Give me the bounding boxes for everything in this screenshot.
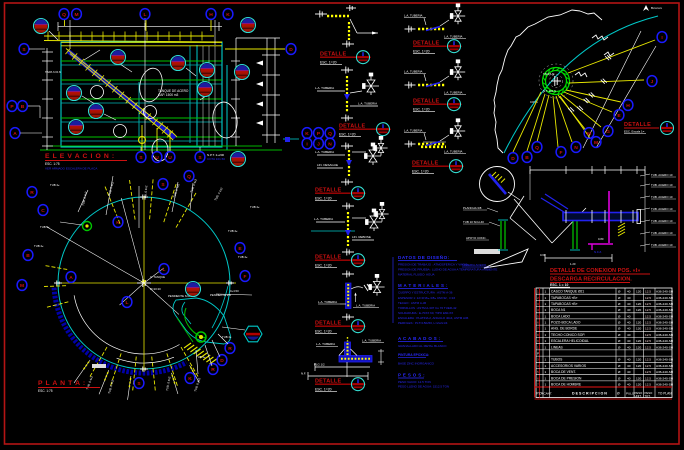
svg-text:BASE ZINC INORGANICO: BASE ZINC INORGANICO [398,362,435,366]
svg-text:TUB 4«: TUB 4« [250,205,260,209]
svg-text:M: M [594,140,598,146]
svg-text:DETALLE: DETALLE [624,122,651,128]
svg-text:A36-240-SH: A36-240-SH [656,296,673,300]
svg-text:Q: Q [328,131,332,137]
svg-text:L: L [163,267,166,273]
svg-text:120: 120 [636,364,641,368]
svg-text:M: M [20,283,24,289]
svg-text:PRESION DE PRUEBA : LLENO DE A: PRESION DE PRUEBA : LLENO DE AGUA A TEMP… [398,268,497,272]
svg-text:K: K [226,12,230,18]
svg-text:ESCALERA : PLATINA 2, ANGULO 4: ESCALERA : PLATINA 2, ANGULO 40x4, ASTM … [398,316,469,320]
svg-text:F: F [244,274,247,280]
svg-text:40: 40 [627,345,631,349]
svg-text:1: 1 [545,345,547,349]
svg-text:TANQUE: TANQUE [543,72,555,76]
svg-text:A36-240-SH: A36-240-SH [656,358,673,362]
svg-text:40: 40 [627,358,631,362]
svg-text:Q: Q [535,145,539,151]
svg-text:TUB. ACERO 10: TUB. ACERO 10 [651,195,673,199]
svg-text:TOT.: TOT. [645,394,651,398]
svg-text:40: 40 [627,314,631,318]
svg-text:F: F [560,150,563,156]
svg-text:L.A. TUBERIA: L.A. TUBERIA [404,14,422,18]
svg-text:ESC. 1=20: ESC. 1=20 [315,330,332,334]
svg-text:4: 4 [537,308,539,312]
svg-text:TUBERIA ACERO: TUBERIA ACERO [462,263,487,267]
svg-text:N.F.Z.: N.F.Z. [594,250,602,254]
svg-text:12.5: 12.5 [645,382,651,386]
svg-text:PESO LLENO DE AGUA: 1512.5 TON: PESO LLENO DE AGUA: 1512.5 TON [398,385,449,389]
svg-text:4: 4 [537,364,539,368]
svg-text:12.5: 12.5 [645,314,651,318]
svg-text:DETALLE: DETALLE [412,161,438,167]
svg-text:TAPABOCAS «B»: TAPABOCAS «B» [551,296,578,300]
svg-text:12.5: 12.5 [645,358,651,362]
svg-text:LIN. REBOSE: LIN. REBOSE [352,235,371,239]
svg-text:A36-240-SH: A36-240-SH [656,382,673,386]
svg-text:L.A. TUBERIA: L.A. TUBERIA [444,35,462,39]
svg-text:TUB 4«: TUB 4« [40,225,50,229]
svg-text:PLG 1/2: PLG 1/2 [314,363,325,367]
svg-text:CUERPO Y ESTRUCTURA : ASTM A-3: CUERPO Y ESTRUCTURA : ASTM A-36 [398,291,453,295]
svg-text:L.A. TUBERIA: L.A. TUBERIA [316,342,335,346]
svg-text:COTA 101.50: COTA 101.50 [207,157,225,161]
svg-text:LIN. DESAGUE: LIN. DESAGUE [317,163,338,167]
svg-text:7: 7 [537,327,539,331]
svg-text:CAP. 1500 m3: CAP. 1500 m3 [158,93,179,97]
svg-text:ESC. 1:75: ESC. 1:75 [38,389,53,393]
svg-text:DETALLE: DETALLE [315,321,341,327]
svg-text:40: 40 [627,364,631,368]
svg-text:TUB. ACERO 10: TUB. ACERO 10 [651,183,673,187]
svg-text:POZO-BOCA LADO: POZO-BOCA LADO [551,321,581,325]
svg-text:40: 40 [627,327,631,331]
svg-text:120: 120 [636,376,641,380]
svg-text:ESC. 1=20: ESC. 1=20 [413,50,430,54]
svg-text:7: 7 [537,382,539,386]
svg-text:BOCA DE HOMBRE: BOCA DE HOMBRE [551,382,582,386]
svg-text:ESC. 1=20: ESC. 1=20 [412,170,429,174]
svg-text:12.5: 12.5 [645,321,651,325]
svg-text:C. TANQUE: C. TANQUE [150,275,165,279]
svg-text:TUB 4«: TUB 4« [238,255,248,259]
svg-text:TUB. ACERO 10: TUB. ACERO 10 [651,219,673,223]
svg-text:1: 1 [545,382,547,386]
svg-text:DATOS DE DISEÑO:: DATOS DE DISEÑO: [398,254,450,260]
svg-text:A36-240-SH: A36-240-SH [656,376,673,380]
svg-text:TUB 4«: TUB 4« [196,355,206,359]
svg-text:120: 120 [636,290,641,294]
svg-text:TUB 4«: TUB 4« [50,183,60,187]
svg-text:6: 6 [537,376,539,380]
svg-text:APOYO CONC.: APOYO CONC. [466,236,487,240]
svg-text:C: C [41,208,45,214]
svg-text:1: 1 [545,314,547,318]
svg-text:9: 9 [537,339,539,343]
svg-text:ACCESORIOS VARIOS: ACCESORIOS VARIOS [551,364,587,368]
svg-text:PULG: PULG [626,392,635,396]
svg-text:PESO VACIO: 12.5 TON: PESO VACIO: 12.5 TON [398,380,431,384]
svg-text:GRANALLADO AL METAL BLANCO: GRANALLADO AL METAL BLANCO [398,344,447,348]
svg-text:MATERIAL FLUIDO: AGUA: MATERIAL FLUIDO: AGUA [398,273,435,277]
svg-text:A36-240-SH: A36-240-SH [656,364,673,368]
svg-text:TUB 4«: TUB 4« [222,335,232,339]
svg-text:ESC. 1=20: ESC. 1=20 [320,61,337,65]
svg-text:A36-240-SH: A36-240-SH [656,370,673,374]
svg-text:40: 40 [627,308,631,312]
svg-text:1: 1 [545,370,547,374]
svg-text:120: 120 [636,302,641,306]
svg-text:N.F.: N.F. [301,372,306,376]
svg-text:DETALLE: DETALLE [315,379,341,385]
svg-text:120: 120 [636,358,641,362]
svg-text:TUB. ACERO 10: TUB. ACERO 10 [651,231,673,235]
svg-text:1: 1 [545,333,547,337]
svg-text:VER ARMADO ESCALERA DE PLACA: VER ARMADO ESCALERA DE PLACA [45,167,97,171]
svg-text:2: 2 [537,296,539,300]
svg-text:5: 5 [537,314,539,318]
svg-text:L.A. TUBERIA: L.A. TUBERIA [358,102,377,106]
svg-text:U: U [168,155,172,161]
svg-text:E L E V A C I O N :: E L E V A C I O N : [45,153,115,160]
svg-text:L.A. TUBERIA: L.A. TUBERIA [314,217,333,221]
svg-text:12.5: 12.5 [645,302,651,306]
svg-text:N.T. 101.5: N.T. 101.5 [543,89,556,93]
svg-text:Q: Q [62,12,66,18]
svg-text:1: 1 [545,308,547,312]
svg-text:120: 120 [636,382,641,386]
svg-text:1: 1 [545,358,547,362]
svg-text:TUB. ACERO 10: TUB. ACERO 10 [651,243,673,247]
svg-text:R=10.30: R=10.30 [150,287,161,291]
svg-text:A36-240-SH: A36-240-SH [656,290,673,294]
svg-text:0.80: 0.80 [598,237,604,241]
svg-text:DETALLE: DETALLE [320,52,346,58]
svg-text:TUB 4«: TUB 4« [228,229,238,233]
svg-text:N: N [574,145,578,151]
svg-text:8: 8 [537,333,539,337]
svg-text:12.5: 12.5 [645,290,651,294]
svg-text:ESPESOR 1: 12=3/16»-3/8» CM=: ESPESOR 1: 12=3/16»-3/8» CM=32 , t=16 [398,296,455,300]
svg-text:12.5: 12.5 [645,364,651,368]
svg-text:0+4.50: 0+4.50 [230,289,239,293]
svg-text:120: 120 [636,339,641,343]
svg-text:ANG. DE BORDE: ANG. DE BORDE [551,327,578,331]
svg-text:P L A N T A :: P L A N T A : [38,380,86,387]
svg-text:TUBOS: TUBOS [551,358,563,362]
svg-text:A36-240-SH: A36-240-SH [656,345,673,349]
svg-text:L: L [144,12,147,18]
svg-text:L.A. TUBERIA: L.A. TUBERIA [404,70,422,74]
svg-text:120: 120 [636,327,641,331]
svg-text:P E S O S :: P E S O S : [398,373,425,378]
svg-text:M: M [587,131,591,137]
svg-text:P: P [537,352,539,356]
svg-text:G: G [606,129,610,135]
svg-text:A36-240-SH: A36-240-SH [656,308,673,312]
svg-text:L.A. TUBERIA: L.A. TUBERIA [315,150,334,154]
svg-text:PENDIENTE 2%: PENDIENTE 2% [210,293,231,297]
svg-text:1: 1 [545,327,547,331]
svg-text:L.A. TUBERIA: L.A. TUBERIA [318,300,337,304]
svg-text:40: 40 [627,296,631,300]
svg-text:12.5: 12.5 [645,339,651,343]
svg-text:40: 40 [627,333,631,337]
svg-text:BOCA LADO: BOCA LADO [551,314,570,318]
svg-text:12.5: 12.5 [645,308,651,312]
svg-text:1: 1 [545,376,547,380]
svg-text:J: J [317,141,320,147]
svg-text:TUB. ACERO 10: TUB. ACERO 10 [651,207,673,211]
svg-text:ESC. Escala 1=: ESC. Escala 1= [624,130,645,134]
svg-text:40: 40 [627,339,631,343]
svg-text:LINEAS: LINEAS [551,345,564,349]
svg-text:R: R [30,190,34,196]
svg-text:TAPA h=0.6: TAPA h=0.6 [45,70,61,74]
svg-text:PLANCHA 3/8: PLANCHA 3/8 [463,206,482,210]
svg-text:TORNILLOS : ASTM A-307 Cu 70 T: TORNILLOS : ASTM A-307 Cu 70 TUER-42 [398,306,457,310]
svg-text:TUB 4«: TUB 4« [34,244,44,248]
svg-text:Bxxxxxx: Bxxxxxx [651,6,663,10]
svg-text:40: 40 [627,376,631,380]
svg-text:L.A. TUBERIA: L.A. TUBERIA [356,304,375,308]
svg-text:3: 3 [537,302,539,306]
svg-text:12.5: 12.5 [645,296,651,300]
svg-text:TAPABOCAS «B»: TAPABOCAS «B» [551,302,578,306]
svg-text:.: . [562,392,563,396]
svg-text:L.A. TUBERIA: L.A. TUBERIA [362,339,381,343]
svg-text:12.5: 12.5 [645,376,651,380]
svg-text:PERFILES : PLT=150x50, L=2x2x1: PERFILES : PLT=150x50, L=2x2x1/4 [398,321,448,325]
svg-text:12.5: 12.5 [645,327,651,331]
svg-text:1: 1 [545,339,547,343]
svg-text:DETALLE: DETALLE [315,255,341,261]
svg-text:L.A. TUBERIA: L.A. TUBERIA [444,150,462,154]
svg-text:1: 1 [537,290,539,294]
svg-text:120: 120 [636,345,641,349]
svg-text:120: 120 [636,321,641,325]
svg-text:J: J [651,79,654,85]
svg-text:TUB 10 SCH-40: TUB 10 SCH-40 [463,220,484,224]
svg-text:ESCALERA HELICOIDAL: ESCALERA HELICOIDAL [551,339,589,343]
svg-text:R: R [211,367,215,373]
svg-text:A C A B A D O S :: A C A B A D O S : [398,336,441,341]
svg-text:BOCA DE VENT.: BOCA DE VENT. [551,370,576,374]
svg-text:1: 1 [537,345,539,349]
svg-text:A36-240-SH: A36-240-SH [656,327,673,331]
svg-text:A: A [69,275,73,281]
svg-text:K: K [305,131,309,137]
svg-text:40: 40 [627,370,631,374]
svg-text:40: 40 [627,302,631,306]
svg-text:N: N [328,141,332,147]
svg-text:ESC. 1=20: ESC. 1=20 [413,108,430,112]
svg-text:1: 1 [545,302,547,306]
svg-text:1: 1 [545,290,547,294]
svg-text:SOLDADURA : E-70XX 60, TIPO E6: SOLDADURA : E-70XX 60, TIPO E60-XX [398,311,453,315]
svg-text:40: 40 [627,382,631,386]
svg-text:L.A. TUBERIA: L.A. TUBERIA [444,91,462,95]
svg-text:3: 3 [537,358,539,362]
svg-text:TUB. ACERO 10: TUB. ACERO 10 [651,173,673,177]
svg-text:UNIT.: UNIT. [635,394,642,398]
svg-text:1: 1 [545,321,547,325]
svg-text:A36-240-SH: A36-240-SH [656,314,673,318]
svg-text:TECHO CONICO SOP.: TECHO CONICO SOP. [551,333,585,337]
svg-text:D E S C R I P C I O N: D E S C R I P C I O N [572,392,607,396]
svg-text:DETALLE: DETALLE [413,99,439,105]
svg-text:DESCARGA RECIRCULACION.: DESCARGA RECIRCULACION. [550,277,632,283]
svg-text:BOCA N1: BOCA N1 [551,308,565,312]
svg-text:5: 5 [537,370,539,374]
svg-text:L.A. TUBERIA: L.A. TUBERIA [315,86,334,90]
svg-text:1: 1 [545,364,547,368]
svg-text:K: K [188,376,192,382]
svg-text:ESC. 1=20: ESC. 1=20 [315,388,332,392]
svg-text:ESC. 1:75: ESC. 1:75 [45,162,60,166]
svg-text:ESC. 1=20: ESC. 1=20 [315,197,332,201]
svg-text:12.5: 12.5 [645,345,651,349]
svg-text:PRESION DE TRABAJO : ATMOSFERI: PRESION DE TRABAJO : ATMOSFERICA Y VACIO [398,263,468,267]
svg-text:U: U [155,155,159,161]
svg-text:ESC. 1=20: ESC. 1=20 [339,133,356,137]
svg-text:B: B [26,253,30,259]
svg-text:R: R [228,346,232,352]
svg-text:M A T E R I A L E S :: M A T E R I A L E S : [398,283,448,288]
svg-text:ESC. 1=20: ESC. 1=20 [315,264,332,268]
svg-text:A36-240-SH: A36-240-SH [656,333,673,337]
svg-text:D: D [289,47,293,53]
svg-text:DETALLE: DETALLE [315,188,341,194]
svg-text:TECHO : ASTM A-36: TECHO : ASTM A-36 [398,301,427,305]
svg-text:BOCA DE PRESION: BOCA DE PRESION [551,376,582,380]
svg-text:L: L [126,300,129,306]
svg-text:A36-240-SH: A36-240-SH [656,302,673,306]
svg-text:CASCO TANQUE Ø21: CASCO TANQUE Ø21 [551,290,584,294]
svg-text:D: D [220,358,224,364]
svg-text:B: B [525,155,529,161]
svg-text:12.5: 12.5 [645,370,651,374]
svg-text:DETALLE: DETALLE [413,41,439,47]
svg-text:TO PLAN: TO PLAN [658,392,672,396]
svg-text:1: 1 [545,296,547,300]
svg-text:M: M [74,12,78,18]
svg-text:ESC. 1 = 10: ESC. 1 = 10 [550,283,568,287]
svg-text:Q: Q [187,174,191,180]
svg-text:120: 120 [636,308,641,312]
svg-text:L.A. TUBERIA: L.A. TUBERIA [404,129,422,133]
svg-text:6: 6 [537,321,539,325]
svg-text:40: 40 [627,321,631,325]
svg-text:A36-240-SH: A36-240-SH [656,339,673,343]
svg-text:H: H [209,12,213,18]
svg-text:H: H [626,103,630,109]
svg-text:Ø: Ø [617,392,620,396]
svg-text:K: K [116,220,120,226]
svg-text:1.20: 1.20 [570,262,576,266]
svg-text:DETALLE DE CONEXION POS. «: DETALLE DE CONEXION POS. «I» [550,268,640,274]
svg-text:A36-240-SH: A36-240-SH [656,321,673,325]
svg-text:DETALLE: DETALLE [339,124,365,130]
svg-text:B: B [21,104,25,110]
svg-text:12.5: 12.5 [645,333,651,337]
svg-text:0.60: 0.60 [540,253,546,257]
svg-text:40: 40 [627,290,631,294]
svg-text:PINTURA EPOXICA:: PINTURA EPOXICA: [398,353,429,357]
svg-text:A: A [13,131,17,137]
svg-text:CANT.: CANT. [544,392,553,396]
svg-text:D: D [511,156,515,162]
